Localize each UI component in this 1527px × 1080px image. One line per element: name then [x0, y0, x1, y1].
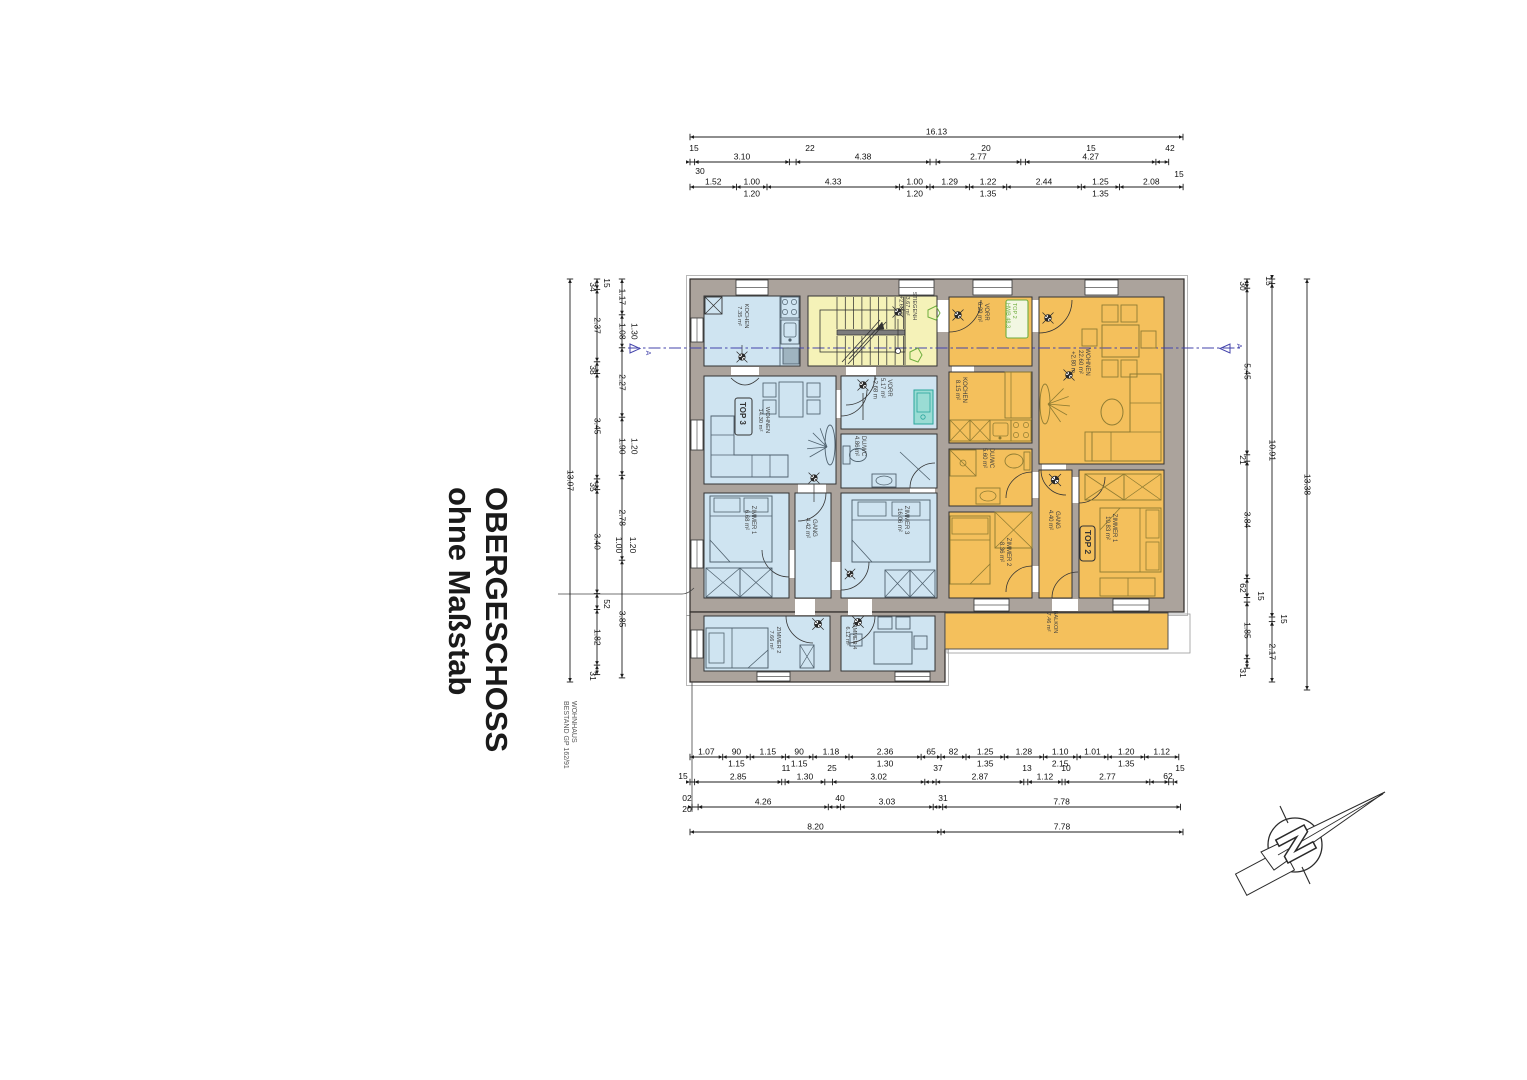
- svg-text:DU/WC5.60 m²: DU/WC5.60 m²: [981, 448, 994, 469]
- svg-text:2.77: 2.77: [1099, 772, 1116, 782]
- svg-text:1.15: 1.15: [760, 747, 777, 757]
- svg-text:15: 15: [1279, 614, 1289, 624]
- svg-text:3.85: 3.85: [618, 611, 628, 628]
- svg-text:KOCHEN7.35 m²: KOCHEN7.35 m²: [736, 304, 749, 329]
- svg-text:GANG4.42 m²: GANG4.42 m²: [804, 518, 817, 538]
- svg-text:1.22: 1.22: [980, 177, 997, 187]
- svg-text:DU/WC4.86 m²: DU/WC4.86 m²: [853, 436, 866, 457]
- svg-text:BALKON7.46 m²: BALKON7.46 m²: [1045, 611, 1058, 634]
- svg-text:A: A: [644, 351, 651, 356]
- svg-text:20: 20: [682, 804, 692, 814]
- svg-text:15: 15: [1174, 169, 1184, 179]
- svg-text:1.90: 1.90: [618, 438, 628, 455]
- svg-text:ZIMMER 46.12 m²: ZIMMER 46.12 m²: [844, 623, 857, 650]
- svg-text:1.20: 1.20: [743, 189, 760, 199]
- svg-text:1.01: 1.01: [1084, 747, 1101, 757]
- svg-text:1.30: 1.30: [797, 772, 814, 782]
- svg-text:35: 35: [588, 482, 598, 492]
- svg-text:13: 13: [1022, 763, 1032, 773]
- svg-text:90: 90: [794, 747, 804, 757]
- svg-text:31: 31: [588, 671, 598, 681]
- svg-text:4.33: 4.33: [825, 177, 842, 187]
- svg-text:21: 21: [1238, 455, 1248, 465]
- svg-text:1.20: 1.20: [1118, 747, 1135, 757]
- svg-text:1.35: 1.35: [980, 189, 997, 199]
- svg-text:3.02: 3.02: [870, 772, 887, 782]
- svg-text:1.25: 1.25: [977, 747, 994, 757]
- svg-text:1.12: 1.12: [1037, 772, 1054, 782]
- svg-text:2.17: 2.17: [1268, 644, 1278, 661]
- svg-text:4.38: 4.38: [855, 152, 872, 162]
- svg-text:13.38: 13.38: [1303, 474, 1313, 496]
- svg-text:1.20: 1.20: [628, 537, 638, 554]
- svg-text:KOCHEN8.15 m²: KOCHEN8.15 m²: [954, 377, 967, 403]
- svg-text:8.20: 8.20: [807, 822, 824, 832]
- svg-text:25: 25: [827, 763, 837, 773]
- svg-text:15: 15: [1256, 591, 1266, 601]
- svg-text:31: 31: [1238, 668, 1248, 678]
- svg-text:1.18: 1.18: [823, 747, 840, 757]
- svg-text:15: 15: [1086, 143, 1096, 153]
- svg-text:ZIMMER 110.83 m²: ZIMMER 110.83 m²: [1104, 514, 1117, 543]
- svg-text:11: 11: [782, 763, 791, 773]
- svg-text:3.03: 3.03: [879, 797, 896, 807]
- svg-text:1.00: 1.00: [743, 177, 760, 187]
- svg-text:WOHNEN14.30 m²: WOHNEN14.30 m²: [757, 407, 770, 433]
- svg-text:62: 62: [1163, 771, 1173, 781]
- svg-text:3.45: 3.45: [593, 418, 603, 435]
- svg-text:1.29: 1.29: [941, 177, 958, 187]
- svg-text:2.85: 2.85: [730, 772, 747, 782]
- svg-text:3.84: 3.84: [1243, 512, 1253, 529]
- svg-text:1.08: 1.08: [618, 323, 628, 340]
- svg-text:30: 30: [695, 166, 705, 176]
- svg-text:90: 90: [732, 747, 742, 757]
- svg-text:30: 30: [1238, 281, 1248, 291]
- svg-text:1.15: 1.15: [791, 759, 808, 769]
- svg-text:1.35: 1.35: [977, 759, 994, 769]
- svg-text:15: 15: [689, 143, 699, 153]
- svg-text:1.25: 1.25: [1092, 177, 1109, 187]
- svg-text:1.17: 1.17: [618, 289, 628, 306]
- svg-text:4.26: 4.26: [755, 797, 772, 807]
- svg-text:7.78: 7.78: [1053, 797, 1070, 807]
- svg-text:40: 40: [835, 793, 845, 803]
- svg-text:20: 20: [981, 143, 991, 153]
- svg-text:1.20: 1.20: [630, 438, 640, 455]
- svg-text:38: 38: [588, 365, 598, 375]
- svg-text:16.13: 16.13: [926, 127, 948, 137]
- svg-text:1.00: 1.00: [906, 177, 923, 187]
- svg-text:15: 15: [1264, 276, 1274, 286]
- svg-text:1.82: 1.82: [593, 629, 603, 646]
- svg-text:15: 15: [602, 278, 612, 288]
- svg-text:52: 52: [602, 599, 612, 609]
- svg-text:15: 15: [1175, 763, 1185, 773]
- svg-text:TOP 3: TOP 3: [738, 402, 747, 425]
- svg-text:1.12: 1.12: [1153, 747, 1170, 757]
- svg-text:1.35: 1.35: [1118, 759, 1135, 769]
- svg-text:2.27: 2.27: [618, 374, 628, 391]
- svg-text:62: 62: [1238, 583, 1248, 593]
- svg-text:GANG4.40 m²: GANG4.40 m²: [1047, 510, 1060, 530]
- svg-text:37: 37: [933, 763, 943, 773]
- svg-text:1.00: 1.00: [614, 537, 624, 554]
- svg-text:42: 42: [1165, 143, 1175, 153]
- svg-text:7.78: 7.78: [1054, 822, 1071, 832]
- svg-text:5.45: 5.45: [1243, 363, 1253, 380]
- svg-text:2.37: 2.37: [593, 317, 603, 334]
- svg-text:34: 34: [588, 282, 598, 292]
- svg-text:02: 02: [682, 793, 692, 803]
- svg-text:A: A: [1235, 344, 1242, 349]
- svg-text:10.91: 10.91: [1268, 440, 1278, 462]
- svg-text:TOP 2: TOP 2: [1083, 530, 1093, 555]
- svg-text:13.07: 13.07: [566, 470, 576, 492]
- svg-text:2.77: 2.77: [970, 152, 987, 162]
- svg-text:1.10: 1.10: [1052, 747, 1069, 757]
- svg-text:2.87: 2.87: [972, 772, 989, 782]
- svg-text:1.07: 1.07: [698, 747, 715, 757]
- svg-text:10: 10: [1061, 763, 1071, 773]
- svg-text:4.27: 4.27: [1082, 152, 1099, 162]
- svg-text:1.85: 1.85: [1243, 622, 1253, 639]
- svg-text:22: 22: [805, 143, 815, 153]
- svg-text:3.10: 3.10: [734, 152, 751, 162]
- svg-text:2.08: 2.08: [1143, 177, 1160, 187]
- svg-text:1.20: 1.20: [906, 189, 923, 199]
- svg-text:15: 15: [678, 771, 688, 781]
- svg-text:VORR6.29 m²: VORR6.29 m²: [976, 302, 989, 322]
- svg-text:31: 31: [938, 793, 948, 803]
- svg-text:VORR5.17 m²+2.68 m: VORR5.17 m²+2.68 m: [872, 377, 892, 399]
- svg-text:ZIMMER 27.66 m²: ZIMMER 27.66 m²: [768, 627, 781, 654]
- svg-text:2.44: 2.44: [1036, 177, 1053, 187]
- svg-text:2.36: 2.36: [877, 747, 894, 757]
- svg-text:3.40: 3.40: [593, 533, 603, 550]
- svg-text:ZIMMER 316.06 m²: ZIMMER 316.06 m²: [896, 506, 909, 535]
- svg-text:2.78: 2.78: [618, 509, 628, 526]
- svg-text:1.35: 1.35: [1092, 189, 1109, 199]
- svg-text:1.30: 1.30: [630, 323, 640, 340]
- svg-text:82: 82: [949, 747, 959, 757]
- svg-text:1.52: 1.52: [705, 177, 722, 187]
- svg-text:1.15: 1.15: [728, 759, 745, 769]
- svg-text:1.30: 1.30: [877, 759, 894, 769]
- svg-text:WOHNEN22.60 m²+2.80 m: WOHNEN22.60 m²+2.80 m: [1070, 348, 1090, 375]
- svg-text:1.28: 1.28: [1016, 747, 1033, 757]
- svg-text:65: 65: [926, 747, 936, 757]
